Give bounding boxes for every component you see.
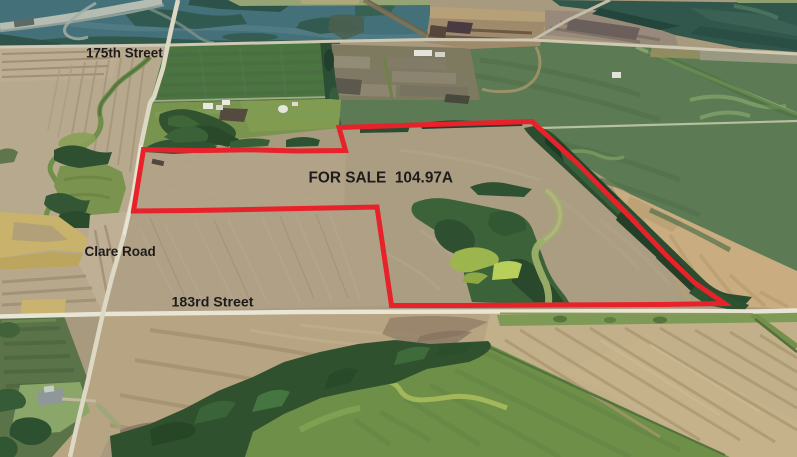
svg-text:183rd Street: 183rd Street <box>172 295 254 311</box>
svg-text:175th Street: 175th Street <box>86 46 163 61</box>
svg-text:FOR SALE 104.97A: FOR SALE 104.97A <box>309 170 454 187</box>
svg-text:Clare Road: Clare Road <box>85 244 156 259</box>
